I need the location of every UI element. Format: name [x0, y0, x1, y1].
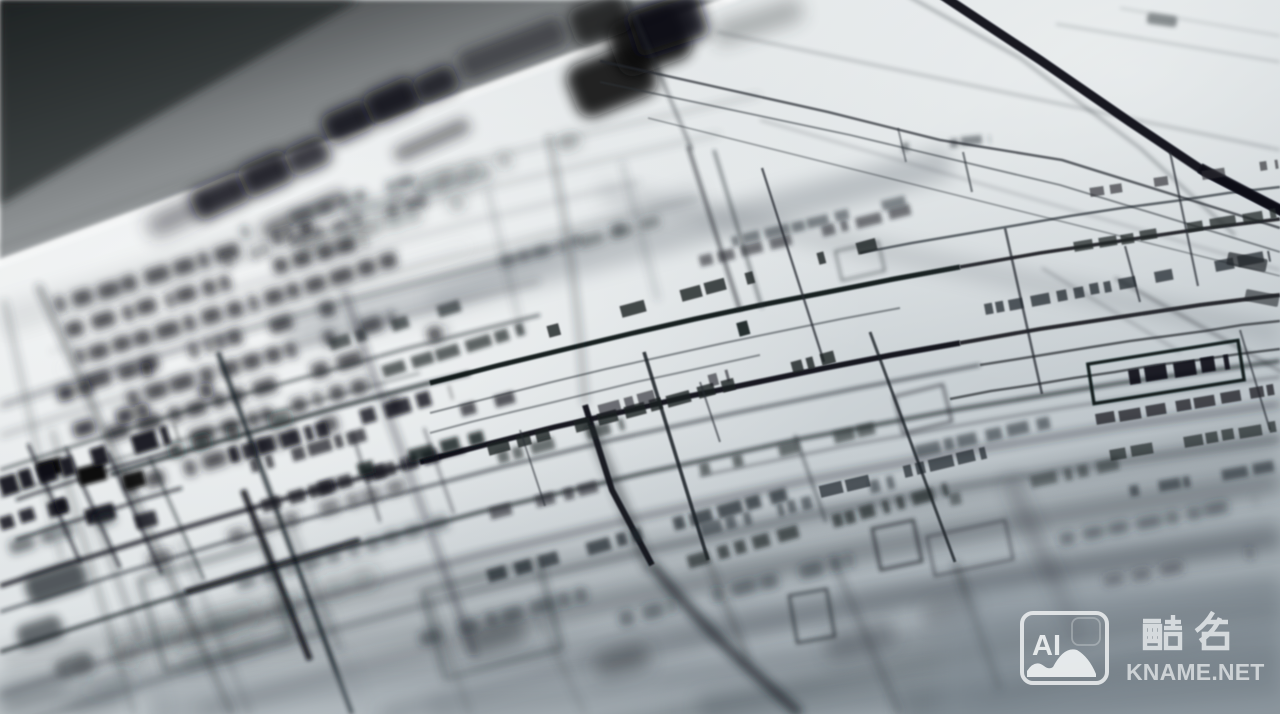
svg-text:AI: AI: [1032, 630, 1061, 662]
svg-text:KNAME.NET: KNAME.NET: [1126, 659, 1265, 685]
